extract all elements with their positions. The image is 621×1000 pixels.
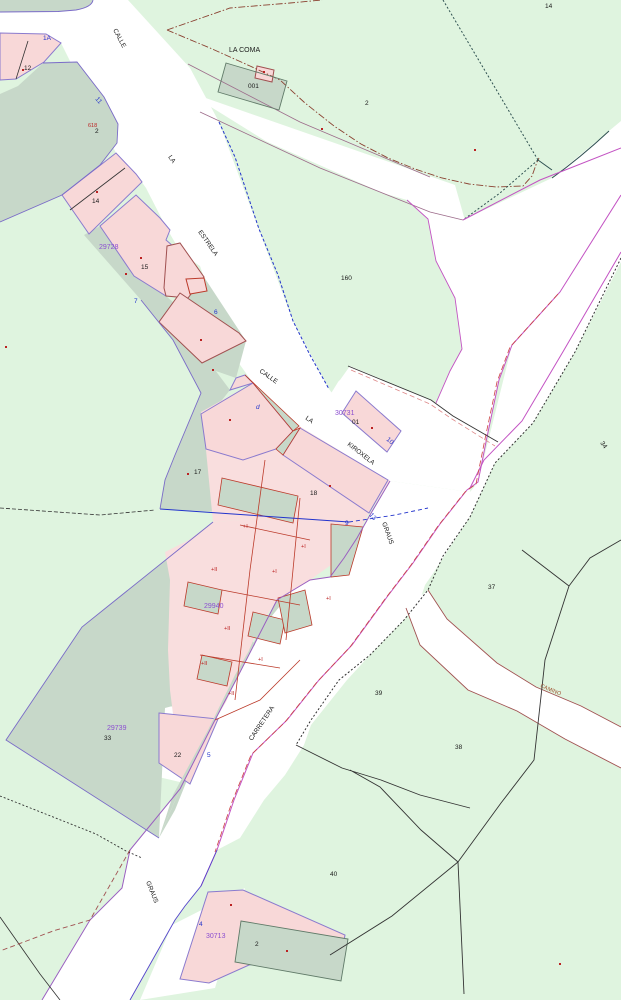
svg-text:+II: +II: [228, 691, 235, 697]
svg-text:14: 14: [545, 3, 553, 10]
svg-text:14: 14: [92, 198, 100, 205]
svg-text:001: 001: [248, 83, 259, 90]
svg-text:160: 160: [341, 275, 352, 282]
svg-text:+II: +II: [224, 626, 231, 632]
svg-text:+I: +I: [243, 524, 248, 530]
svg-text:618: 618: [88, 123, 97, 129]
svg-text:33: 33: [104, 735, 112, 742]
svg-text:4: 4: [199, 921, 203, 928]
svg-text:7: 7: [134, 298, 138, 305]
svg-text:2: 2: [255, 941, 259, 948]
svg-text:d: d: [256, 404, 260, 411]
svg-text:12: 12: [24, 65, 32, 72]
svg-text:39: 39: [375, 690, 383, 697]
svg-text:+II: +II: [211, 567, 218, 573]
svg-text:2: 2: [95, 128, 99, 135]
svg-text:17: 17: [194, 469, 202, 476]
svg-text:40: 40: [330, 871, 338, 878]
svg-text:22: 22: [174, 752, 182, 759]
svg-text:+I: +I: [258, 657, 263, 663]
svg-text:30713: 30713: [206, 933, 226, 940]
svg-text:29739: 29739: [107, 725, 127, 732]
svg-text:38: 38: [455, 744, 463, 751]
svg-text:29728: 29728: [99, 244, 119, 251]
svg-text:1A: 1A: [43, 35, 52, 42]
svg-text:37: 37: [488, 584, 496, 591]
svg-text:9: 9: [345, 520, 349, 527]
svg-text:5: 5: [207, 752, 211, 759]
svg-text:+I: +I: [272, 569, 277, 575]
svg-text:+I: +I: [326, 596, 331, 602]
svg-text:29940: 29940: [204, 603, 224, 610]
svg-text:30731: 30731: [335, 410, 355, 417]
svg-text:2: 2: [365, 100, 369, 107]
svg-text:01: 01: [352, 419, 360, 426]
svg-text:6: 6: [214, 309, 218, 316]
svg-text:15: 15: [141, 264, 149, 271]
svg-text:LA COMA: LA COMA: [229, 47, 260, 54]
svg-text:+I: +I: [301, 544, 306, 550]
svg-text:+II: +II: [201, 661, 208, 667]
svg-text:18: 18: [310, 490, 318, 497]
